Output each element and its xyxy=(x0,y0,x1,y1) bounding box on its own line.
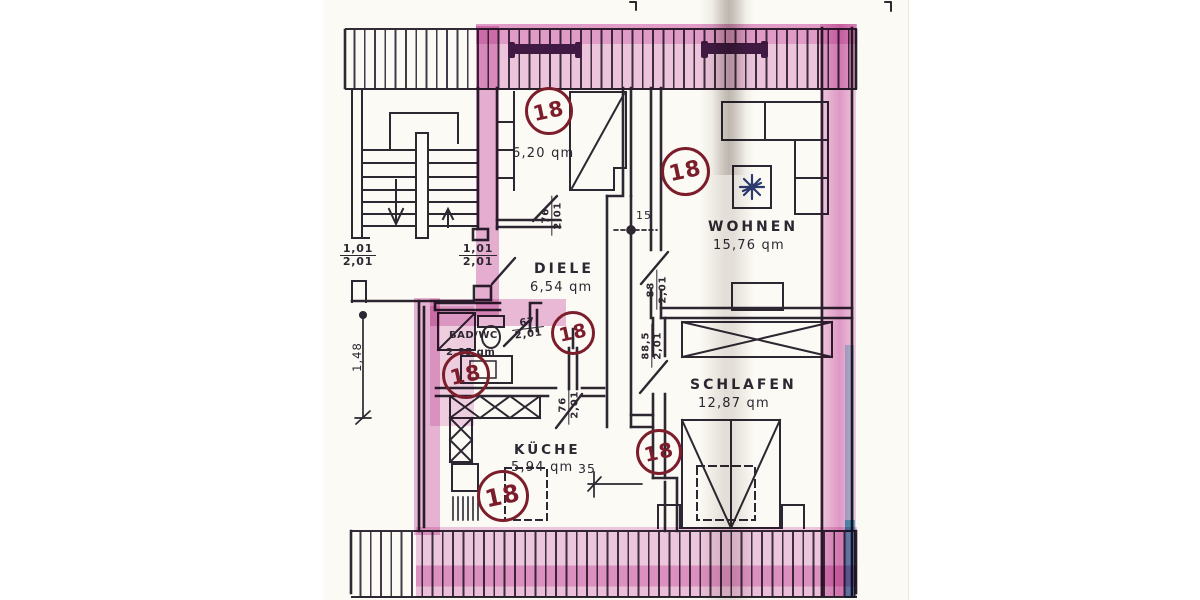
highlight-top-wall xyxy=(476,24,857,90)
plant-icon xyxy=(740,175,764,199)
dim-num: 76 xyxy=(557,385,569,425)
dim-wall-thickness: 15 xyxy=(636,209,652,222)
room-diele-area: 6,54 qm xyxy=(530,280,592,295)
unit-marker-kueche: 18 xyxy=(477,470,529,522)
sofa-top xyxy=(722,102,828,140)
dim-num: 1,01 xyxy=(340,243,376,256)
dim-window-right: 1,01 2,01 xyxy=(459,243,497,269)
kitchen-sink xyxy=(452,464,478,491)
room-bad-name: BAD/WC xyxy=(449,330,498,341)
unit-marker-diele: 18 xyxy=(551,311,595,355)
dim-den: 2,01 xyxy=(658,270,669,310)
floor-plan-scan: 6,20 qm WOHNEN 15,76 qm DIELE 6,54 qm BA… xyxy=(0,0,1200,600)
unit-marker-wohnen: 18 xyxy=(661,147,710,196)
dim-recess-width: 35 xyxy=(578,461,596,476)
room-diele-name: DIELE xyxy=(534,261,594,277)
dim-door-wohnen: 88 2,01 xyxy=(645,270,668,310)
dim-side-length: 1,48 xyxy=(350,337,364,377)
room-wohnen-area: 15,76 qm xyxy=(713,238,785,253)
highlight-left-wall-upper xyxy=(476,26,499,316)
dim-den: 2,01 xyxy=(459,256,497,268)
dim-window-left: 1,01 2,01 xyxy=(340,243,376,269)
dim-num: 1,01 xyxy=(459,243,497,256)
room-kueche-area: 5,94 qm xyxy=(511,460,573,475)
unit-marker-bad: 18 xyxy=(442,351,490,399)
dim-door-bad: 67 2,01 xyxy=(511,315,546,342)
room-attic-area: 6,20 qm xyxy=(512,146,574,161)
dim-door-kueche: 76 2,01 xyxy=(557,385,580,425)
room-wohnen-name: WOHNEN xyxy=(708,219,798,235)
unit-marker-attic: 18 xyxy=(525,87,573,135)
dim-num: 76 xyxy=(540,196,552,236)
radiator xyxy=(453,497,478,520)
attic-shelf xyxy=(498,92,514,190)
cyan-edge-strip xyxy=(845,345,854,530)
unit-marker-schlafen: 18 xyxy=(636,429,682,475)
highlight-bottom-wall xyxy=(416,527,857,597)
room-schlafen-area: 12,87 qm xyxy=(698,396,770,411)
dim-door-attic: 76 2,01 xyxy=(540,196,563,236)
room-schlafen-name: SCHLAFEN xyxy=(690,377,797,393)
dim-den: 2,01 xyxy=(553,196,564,236)
stairwell xyxy=(352,90,477,302)
dim-den: 2,01 xyxy=(570,385,581,425)
dim-door-schlafen: 88,5 2,01 xyxy=(640,324,663,368)
plan-linework xyxy=(0,0,1200,600)
dim-num: 88,5 xyxy=(640,324,652,368)
dim-num: 88 xyxy=(645,270,657,310)
sideboard xyxy=(732,283,783,310)
dim-den: 2,01 xyxy=(653,324,664,368)
dim-den: 2,01 xyxy=(340,256,376,268)
cyan-edge-strip-bottom xyxy=(845,520,855,598)
room-kueche-name: KÜCHE xyxy=(514,442,581,458)
